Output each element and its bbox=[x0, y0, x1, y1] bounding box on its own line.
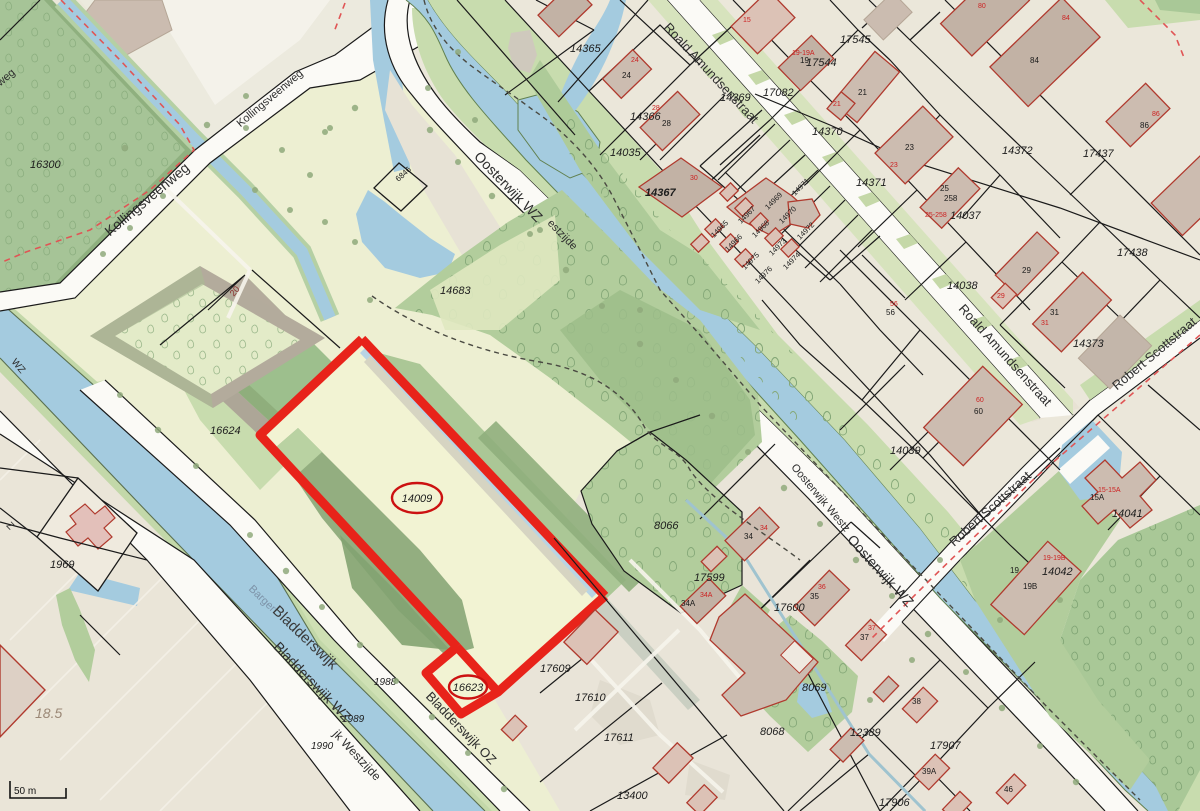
svg-text:8069: 8069 bbox=[802, 682, 826, 694]
svg-text:17609: 17609 bbox=[540, 663, 571, 675]
svg-text:14035: 14035 bbox=[610, 147, 641, 159]
svg-text:28: 28 bbox=[652, 105, 660, 112]
svg-text:14373: 14373 bbox=[1073, 338, 1104, 350]
svg-text:36: 36 bbox=[818, 584, 826, 591]
svg-text:14039: 14039 bbox=[890, 445, 921, 457]
svg-text:14372: 14372 bbox=[1002, 145, 1033, 157]
svg-text:29: 29 bbox=[1022, 266, 1031, 275]
svg-text:84: 84 bbox=[1030, 56, 1039, 65]
svg-text:31: 31 bbox=[1041, 320, 1049, 327]
svg-text:16623: 16623 bbox=[453, 682, 484, 694]
svg-text:19: 19 bbox=[1010, 566, 1019, 575]
svg-text:34A: 34A bbox=[681, 599, 696, 608]
svg-text:35: 35 bbox=[810, 592, 819, 601]
svg-text:17611: 17611 bbox=[604, 732, 634, 744]
svg-text:258: 258 bbox=[944, 194, 958, 203]
svg-text:15A: 15A bbox=[1090, 493, 1105, 502]
svg-text:17907: 17907 bbox=[930, 740, 961, 752]
svg-text:16300: 16300 bbox=[30, 159, 61, 171]
svg-text:39A: 39A bbox=[922, 767, 937, 776]
svg-text:14367: 14367 bbox=[645, 187, 676, 199]
svg-text:14365: 14365 bbox=[570, 43, 601, 55]
svg-text:14038: 14038 bbox=[947, 280, 978, 292]
svg-text:30: 30 bbox=[690, 175, 698, 182]
svg-text:14037: 14037 bbox=[950, 210, 981, 222]
svg-text:17906: 17906 bbox=[879, 797, 910, 809]
svg-text:50 m: 50 m bbox=[14, 786, 36, 797]
svg-text:23: 23 bbox=[890, 162, 898, 169]
svg-text:80: 80 bbox=[978, 3, 986, 10]
svg-text:14370: 14370 bbox=[812, 126, 843, 138]
svg-text:19-19A: 19-19A bbox=[792, 50, 815, 57]
svg-text:34A: 34A bbox=[700, 592, 713, 599]
svg-text:46: 46 bbox=[1004, 785, 1013, 794]
svg-text:19B: 19B bbox=[1023, 582, 1037, 591]
svg-text:14683: 14683 bbox=[440, 285, 471, 297]
svg-text:31: 31 bbox=[1050, 308, 1059, 317]
svg-text:17082: 17082 bbox=[763, 87, 794, 99]
svg-text:14041: 14041 bbox=[1112, 508, 1143, 520]
svg-text:21: 21 bbox=[833, 101, 841, 108]
svg-text:25: 25 bbox=[940, 184, 949, 193]
svg-text:1969: 1969 bbox=[50, 559, 74, 571]
svg-text:21: 21 bbox=[858, 88, 867, 97]
svg-text:15: 15 bbox=[743, 17, 751, 24]
svg-text:17610: 17610 bbox=[575, 692, 606, 704]
svg-text:16624: 16624 bbox=[210, 425, 241, 437]
svg-text:19: 19 bbox=[800, 56, 809, 65]
svg-text:8066: 8066 bbox=[654, 520, 679, 532]
svg-text:38: 38 bbox=[912, 697, 921, 706]
svg-text:29: 29 bbox=[997, 293, 1005, 300]
svg-text:86: 86 bbox=[1152, 111, 1160, 118]
svg-text:28: 28 bbox=[662, 119, 671, 128]
svg-text:14371: 14371 bbox=[856, 177, 887, 189]
svg-text:12389: 12389 bbox=[850, 727, 881, 739]
svg-text:14366: 14366 bbox=[630, 111, 661, 123]
svg-text:15-15A: 15-15A bbox=[1098, 487, 1121, 494]
svg-text:60: 60 bbox=[974, 407, 983, 416]
svg-text:24: 24 bbox=[622, 71, 631, 80]
svg-text:1988: 1988 bbox=[374, 677, 397, 688]
svg-text:84: 84 bbox=[1062, 15, 1070, 22]
svg-text:19-19B: 19-19B bbox=[1043, 555, 1066, 562]
svg-text:24: 24 bbox=[631, 57, 639, 64]
svg-text:14009: 14009 bbox=[402, 493, 433, 505]
svg-text:25-258: 25-258 bbox=[925, 212, 947, 219]
svg-text:60: 60 bbox=[976, 397, 984, 404]
svg-text:17545: 17545 bbox=[840, 34, 871, 46]
svg-text:18.5: 18.5 bbox=[35, 705, 62, 721]
svg-text:17600: 17600 bbox=[774, 602, 805, 614]
svg-text:56: 56 bbox=[890, 301, 898, 308]
svg-text:34: 34 bbox=[760, 525, 768, 532]
svg-text:17438: 17438 bbox=[1117, 247, 1148, 259]
svg-text:37: 37 bbox=[868, 625, 876, 632]
svg-text:17437: 17437 bbox=[1083, 148, 1114, 160]
svg-text:56: 56 bbox=[886, 308, 895, 317]
svg-text:86: 86 bbox=[1140, 121, 1149, 130]
svg-text:37: 37 bbox=[860, 633, 869, 642]
svg-text:23: 23 bbox=[905, 143, 914, 152]
svg-text:14042: 14042 bbox=[1042, 566, 1073, 578]
svg-text:13400: 13400 bbox=[617, 790, 648, 802]
svg-text:17544: 17544 bbox=[806, 57, 837, 69]
svg-text:1990: 1990 bbox=[311, 741, 334, 752]
svg-text:8068: 8068 bbox=[760, 726, 785, 738]
svg-text:17599: 17599 bbox=[694, 572, 725, 584]
svg-text:34: 34 bbox=[744, 532, 753, 541]
